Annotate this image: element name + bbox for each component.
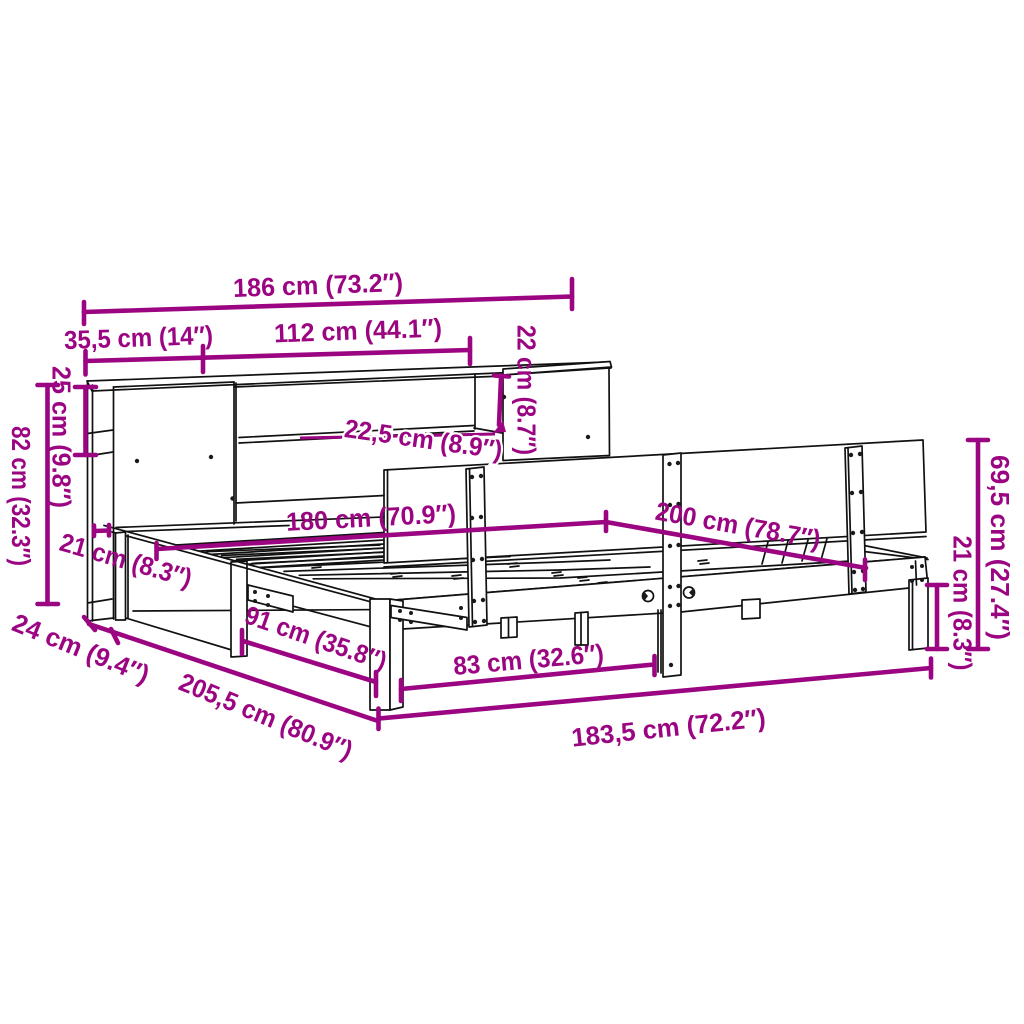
svg-text:22 cm (8.7″): 22 cm (8.7″) (512, 325, 542, 455)
svg-text:112 cm (44.1″): 112 cm (44.1″) (274, 313, 443, 349)
svg-text:82 cm (32.3″): 82 cm (32.3″) (6, 426, 36, 566)
svg-text:69,5 cm (27.4″): 69,5 cm (27.4″) (985, 455, 1015, 640)
svg-text:186 cm (73.2″): 186 cm (73.2″) (233, 267, 404, 303)
svg-text:35,5 cm (14″): 35,5 cm (14″) (64, 320, 214, 355)
